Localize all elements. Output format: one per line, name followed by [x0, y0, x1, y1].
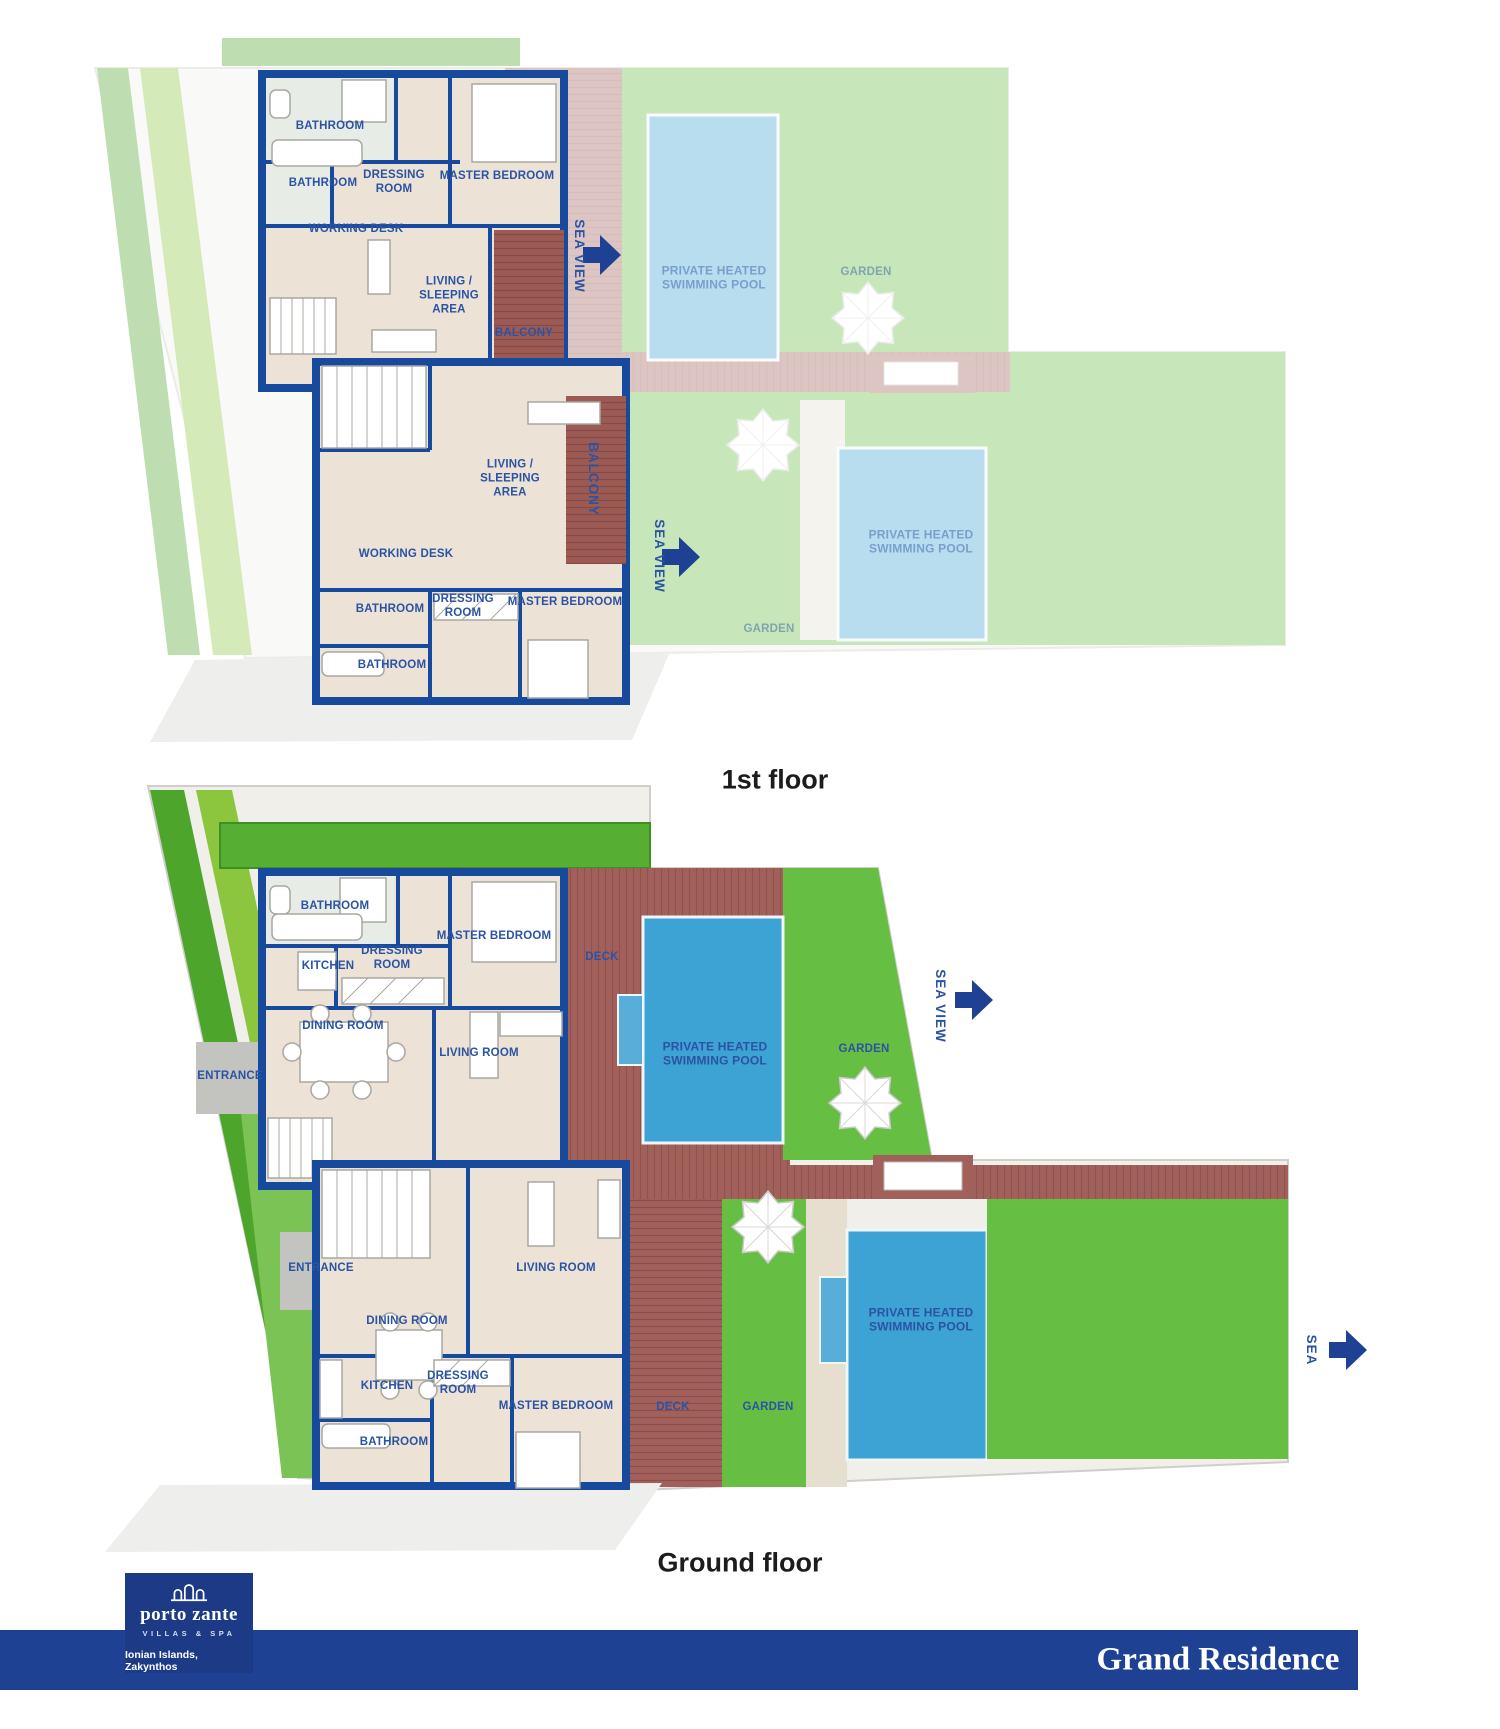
floor-slab-shadow: [105, 1483, 662, 1552]
swimming-pool: [847, 1230, 987, 1460]
garden: [987, 1199, 1288, 1459]
first-floor-villa-2: [316, 362, 626, 701]
roof-hedge: [222, 38, 520, 66]
logo-location: Ionian Islands, Zakynthos: [125, 1649, 253, 1673]
porto-zante-logo: porto zante VILLAS & SPA Ionian Islands,…: [125, 1573, 253, 1673]
pool-steps: [820, 1277, 847, 1363]
ground-floor-villa-2: [316, 1164, 626, 1488]
sea-view-arrow-icon: [955, 980, 993, 1020]
swimming-pool: [648, 115, 778, 360]
floor-plan-page: BATHROOM BATHROOM DRESSING ROOM MASTER B…: [0, 0, 1500, 1729]
residence-title: Grand Residence: [1097, 1642, 1340, 1679]
sea-arrow-icon: [1329, 1330, 1367, 1370]
porto-zante-logo-icon: [158, 1578, 220, 1603]
floor-plan-drawing: [0, 0, 1500, 1729]
swimming-pool: [838, 448, 986, 640]
pool-steps: [618, 995, 643, 1065]
bench: [884, 1162, 962, 1190]
logo-tagline: VILLAS & SPA: [142, 1629, 235, 1638]
swimming-pool: [643, 917, 783, 1143]
bench: [884, 362, 958, 385]
roof-hedge: [220, 823, 650, 868]
logo-name: porto zante: [140, 1604, 238, 1626]
first-floor-villa-1: [262, 74, 564, 388]
ground-floor-villa-1: [262, 872, 564, 1186]
